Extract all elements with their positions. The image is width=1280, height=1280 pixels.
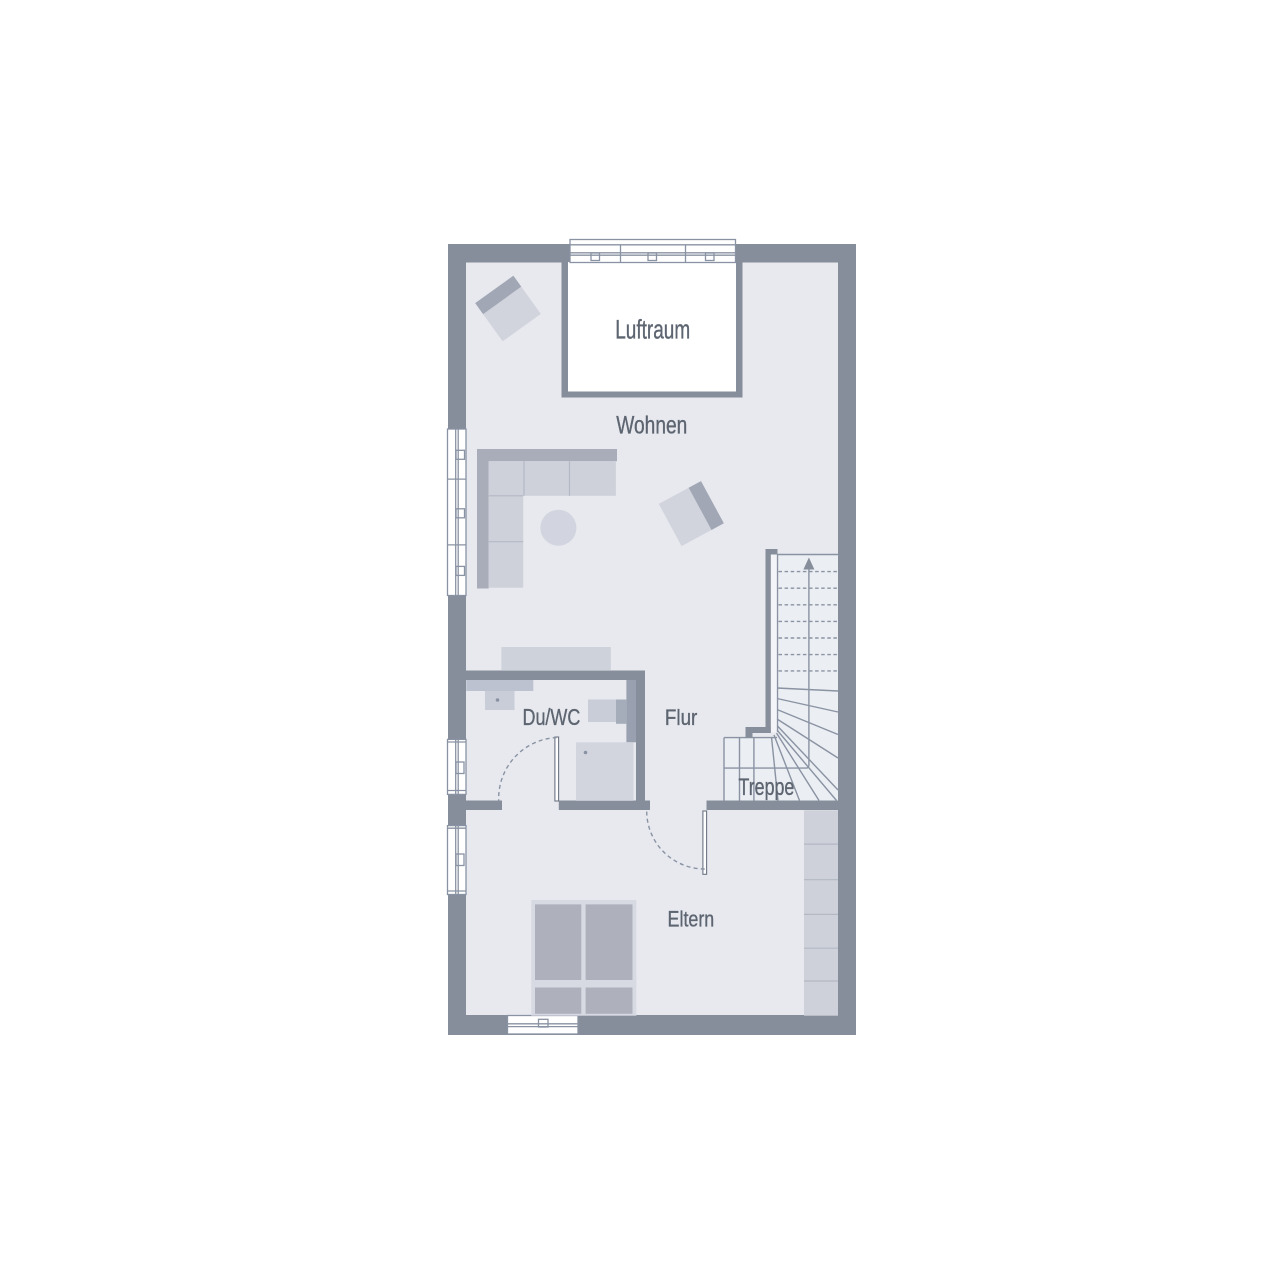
svg-text:Treppe: Treppe [739, 775, 795, 801]
svg-text:Wohnen: Wohnen [616, 413, 687, 440]
svg-text:Luftraum: Luftraum [615, 314, 690, 345]
svg-text:Du/WC: Du/WC [523, 704, 581, 730]
svg-text:Flur: Flur [665, 705, 698, 730]
svg-text:Eltern: Eltern [668, 907, 715, 932]
